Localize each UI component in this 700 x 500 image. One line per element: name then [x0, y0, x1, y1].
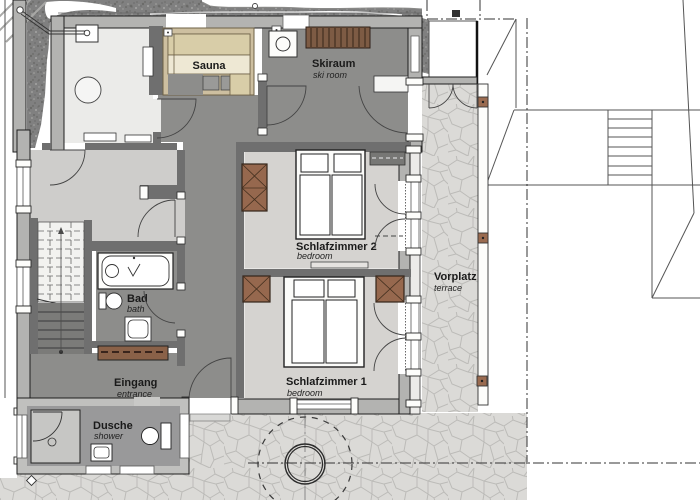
svg-text:ski room: ski room: [313, 70, 348, 80]
svg-text:shower: shower: [94, 431, 124, 441]
svg-text:Vorplatz: Vorplatz: [434, 271, 477, 283]
svg-text:bedroom: bedroom: [297, 251, 333, 261]
svg-text:Schlafzimmer 1: Schlafzimmer 1: [286, 376, 367, 388]
svg-text:Skiraum: Skiraum: [312, 58, 356, 70]
svg-text:Sauna: Sauna: [192, 60, 226, 72]
svg-text:bath: bath: [127, 304, 145, 314]
svg-text:bedroom: bedroom: [287, 388, 323, 398]
svg-text:Eingang: Eingang: [114, 377, 157, 389]
svg-text:terrace: terrace: [434, 283, 462, 293]
